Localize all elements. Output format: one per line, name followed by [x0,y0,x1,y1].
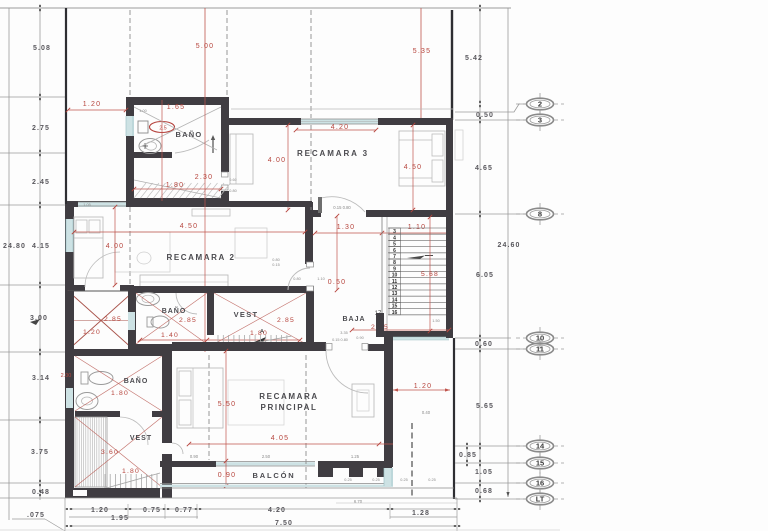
svg-text:8: 8 [538,210,542,219]
svg-text:0.50: 0.50 [328,279,346,286]
svg-text:15: 15 [536,459,544,468]
svg-text:16: 16 [392,310,398,316]
svg-text:0.68: 0.68 [475,488,493,495]
svg-text:4.00: 4.00 [268,157,286,164]
svg-text:3.35: 3.35 [340,331,347,335]
svg-text:BAÑO: BAÑO [162,306,187,315]
svg-text:LT: LT [536,495,545,504]
svg-text:5.00: 5.00 [196,43,214,50]
svg-text:4.20: 4.20 [268,507,286,514]
svg-text:1.05: 1.05 [83,203,90,207]
svg-text:4.00: 4.00 [106,243,124,250]
svg-text:0.80: 0.80 [229,189,236,193]
svg-text:5.35: 5.35 [413,48,431,55]
svg-text:2.85: 2.85 [277,317,295,324]
svg-text:PRINCIPAL: PRINCIPAL [261,403,318,412]
svg-text:2.85: 2.85 [179,317,197,324]
svg-text:1.40: 1.40 [161,332,179,339]
svg-text:4.50: 4.50 [404,164,422,171]
svg-text:3: 3 [538,116,542,125]
svg-text:1.80: 1.80 [111,390,129,397]
svg-text:5.42: 5.42 [465,55,483,62]
svg-text:4.50: 4.50 [180,223,198,230]
svg-text:1.50: 1.50 [432,319,439,323]
svg-text:2.30: 2.30 [195,174,213,181]
svg-text:RECAMARA: RECAMARA [259,392,318,401]
svg-text:2.75: 2.75 [32,125,50,132]
svg-text:3,00: 3,00 [30,315,48,322]
svg-text:3.75: 3.75 [31,449,49,456]
svg-text:0.60: 0.60 [475,341,493,348]
svg-text:0.90: 0.90 [190,454,199,459]
svg-text:1.10: 1.10 [408,224,426,231]
svg-text:1.65: 1.65 [167,104,185,111]
svg-text:2.00: 2.00 [61,373,72,379]
svg-text:3.60: 3.60 [101,449,119,456]
svg-text:1.25: 1.25 [351,454,360,459]
svg-text:1.80: 1.80 [122,468,140,475]
svg-text:1.30: 1.30 [337,224,355,231]
svg-text:1.95: 1.95 [111,515,129,522]
svg-text:VEST: VEST [130,435,152,442]
svg-text:RECAMARA 2: RECAMARA 2 [166,253,235,262]
svg-text:2: 2 [538,100,542,109]
svg-text:24.80: 24.80 [3,243,26,250]
svg-text:0.25: 0.25 [400,478,407,482]
svg-text:16: 16 [536,479,544,488]
svg-text:24.60: 24.60 [497,242,520,249]
svg-text:2.85: 2.85 [104,316,122,323]
svg-text:4.20: 4.20 [331,124,349,131]
svg-text:1.20: 1.20 [83,329,101,336]
svg-text:0.90: 0.90 [218,472,236,479]
svg-text:0.15 0.80: 0.15 0.80 [333,205,351,210]
svg-text:1.20: 1.20 [414,383,432,390]
svg-text:VEST: VEST [234,310,259,319]
svg-text:4.05: 4.05 [271,435,289,442]
svg-text:0.80: 0.80 [272,258,279,262]
svg-text:BAÑO: BAÑO [124,376,149,385]
svg-text:5.50: 5.50 [218,401,236,408]
svg-text:2.5: 2.5 [159,126,166,132]
svg-text:0.48: 0.48 [32,489,50,496]
svg-text:1.80: 1.80 [166,182,184,189]
svg-text:2.45: 2.45 [32,179,50,186]
svg-text:1.05: 1.05 [475,469,493,476]
svg-text:5.08: 5.08 [33,45,51,52]
svg-text:5.68: 5.68 [421,271,439,278]
svg-text:4.65: 4.65 [475,165,493,172]
svg-text:14: 14 [536,442,545,451]
svg-text:1.10: 1.10 [317,277,324,281]
svg-text:RECAMARA 3: RECAMARA 3 [297,149,369,158]
svg-text:0.25: 0.25 [372,478,379,482]
svg-text:BALCÓN: BALCÓN [253,471,296,480]
svg-text:6.05: 6.05 [476,272,494,279]
svg-text:0.90: 0.90 [356,336,363,340]
svg-text:0.25: 0.25 [428,478,435,482]
svg-text:7.50: 7.50 [275,520,293,527]
svg-text:3.14: 3.14 [32,375,50,382]
svg-text:0.40: 0.40 [422,410,431,415]
svg-text:5.65: 5.65 [476,403,494,410]
svg-text:1.28: 1.28 [412,510,430,517]
svg-text:BAJA: BAJA [342,316,365,323]
svg-text:11: 11 [536,345,544,354]
svg-text:0.77: 0.77 [175,507,193,514]
svg-text:1.20: 1.20 [91,507,109,514]
svg-text:A: A [260,329,264,335]
svg-text:0.15 0.80: 0.15 0.80 [332,338,348,342]
svg-text:1.00: 1.00 [139,109,146,113]
svg-text:0.85: 0.85 [459,452,477,459]
svg-text:4.15: 4.15 [32,243,50,250]
svg-text:2.50: 2.50 [262,454,271,459]
svg-text:0.80: 0.80 [293,277,300,281]
svg-text:1.20: 1.20 [83,101,101,108]
svg-text:.075: .075 [27,512,45,519]
svg-text:0.25: 0.25 [344,478,351,482]
svg-text:0.15: 0.15 [272,263,279,267]
svg-text:0.75: 0.75 [143,507,161,514]
svg-text:BAÑO: BAÑO [176,130,203,139]
svg-text:0.50: 0.50 [476,112,494,119]
